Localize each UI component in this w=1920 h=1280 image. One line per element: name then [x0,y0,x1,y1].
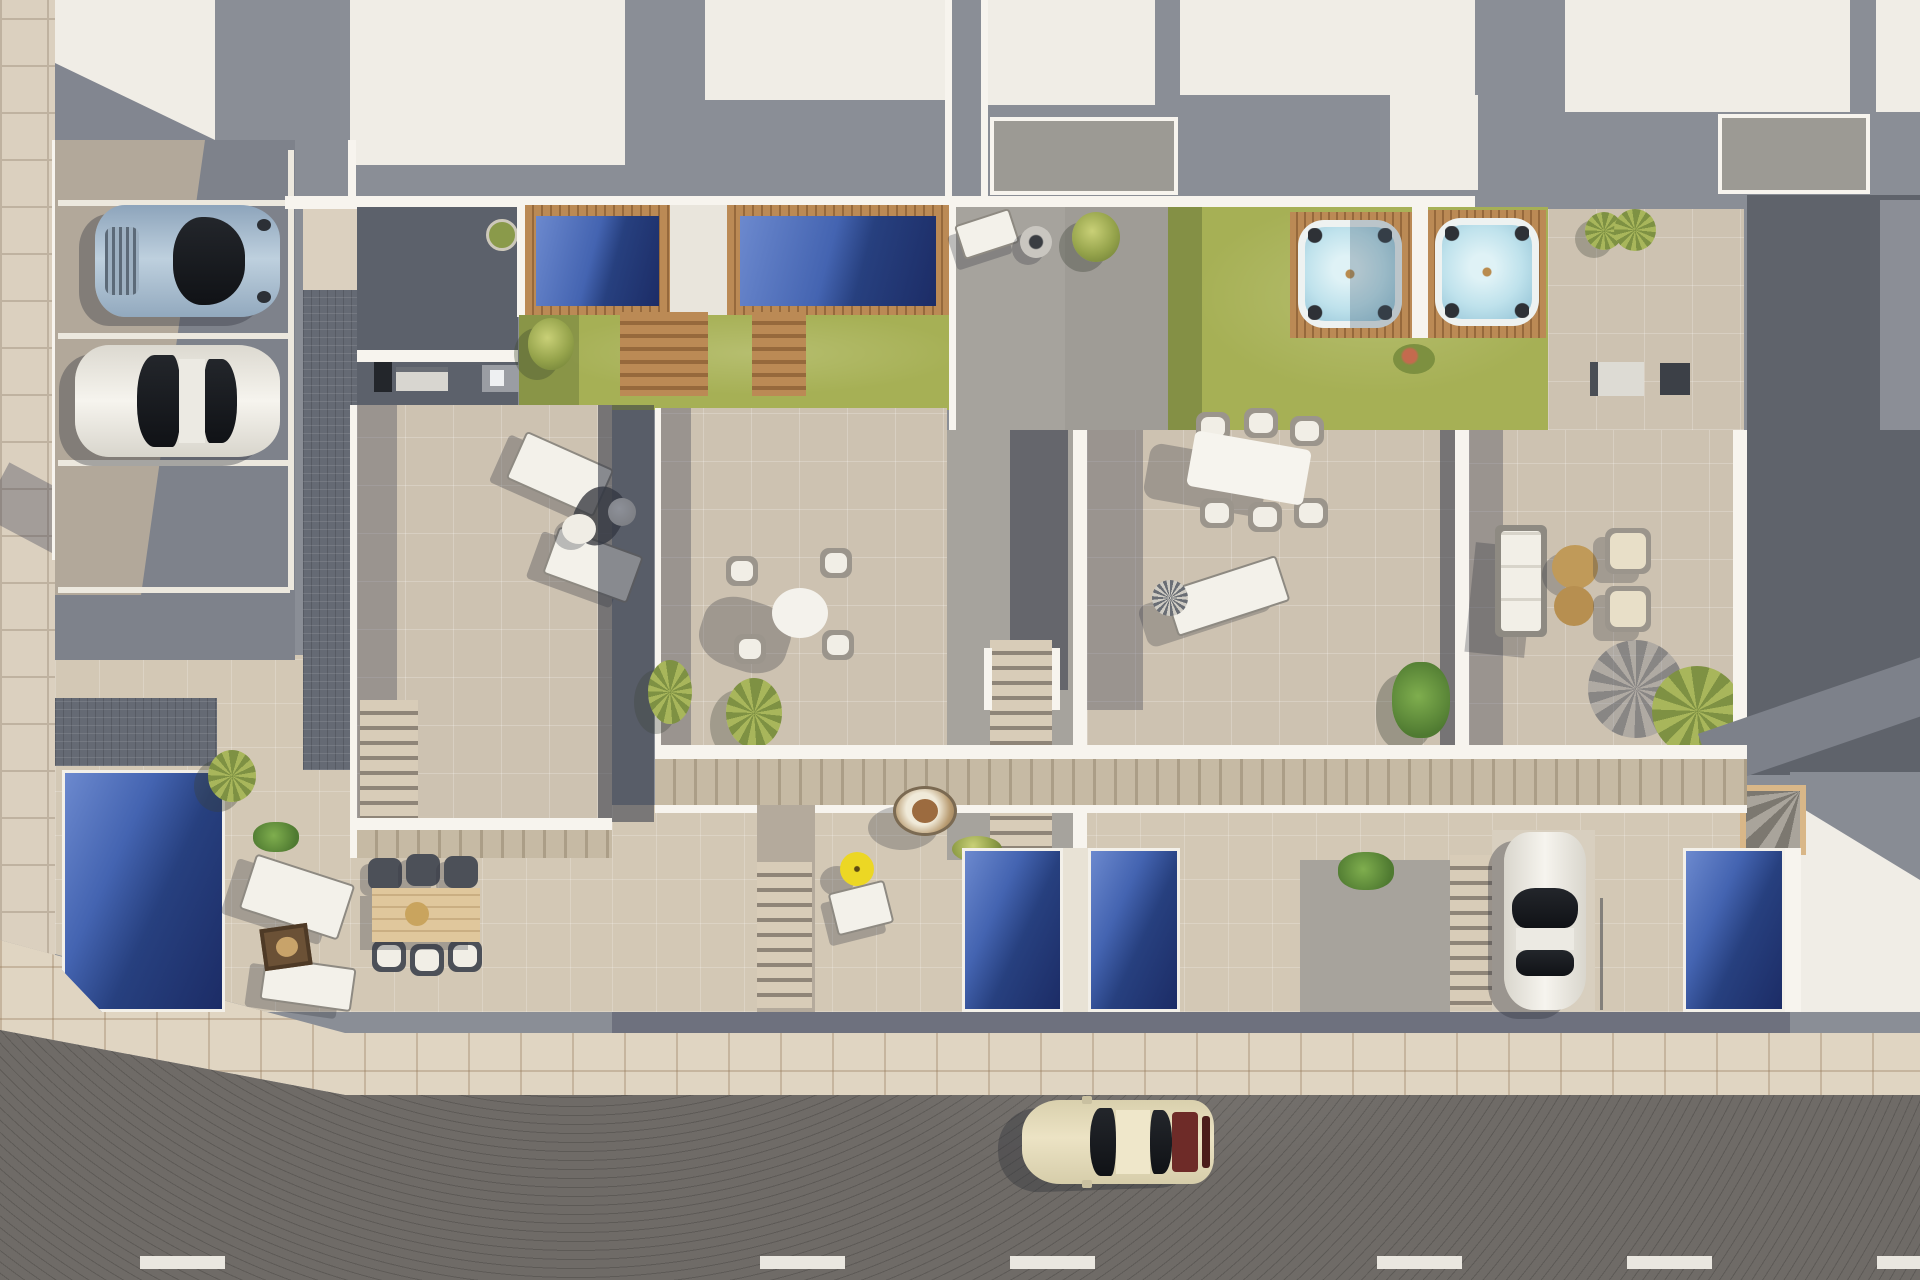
unit1-2-lawn [519,315,949,410]
lawn-shadow [1168,207,1202,430]
coupe-headlight [257,219,271,231]
chair-cushion [731,561,753,581]
unit3-plunge-pool [1088,848,1180,1012]
wicker-chair [820,548,852,578]
stall-line-right [288,150,294,590]
kitchen-module-dark [1660,363,1690,395]
unit3-patio-monstera [1338,852,1394,890]
cream-classic-car [1022,1100,1214,1184]
wicker-chair [734,634,766,664]
monstera-plant [1392,662,1450,738]
stair-newel [984,648,992,710]
pool-divider-wall [1063,848,1088,1012]
party-wall [945,0,952,196]
unit1-upper-parapet [357,350,518,362]
patio-chair [410,944,444,976]
bbq-cabinet [374,362,392,392]
rooftop-unit4a [1390,95,1478,190]
unit1-porch-deck [357,830,612,858]
rooftop-pool2 [740,216,936,306]
neighbor-roof-light-strip [1880,200,1920,430]
unit2-4-porch-deck [655,759,1747,805]
sedan-windshield [137,355,181,447]
silver-blue-coupe [95,205,280,317]
aerial-render-stage [0,0,1920,1280]
sedan-rear-glass [203,359,237,443]
terrace-palm [648,660,692,724]
cobble-strip-vertical [303,290,357,770]
lounger-wheel [1152,580,1188,616]
unit4-entry-stairs [1450,855,1492,1007]
unit2-patio-stairs [757,862,812,1008]
porch-post-shadow [1600,898,1603,1010]
cobble-top-tiles [303,207,357,290]
tub-divider-wall [1412,205,1428,338]
unit1-porch-wall [357,818,612,830]
hatchback-rear-glass [1516,950,1574,976]
sink-module [482,365,522,392]
unit2-4-porch-wall [655,745,1747,759]
chair-cushion [1249,413,1273,433]
unit2-plunge-pool [962,848,1063,1012]
coupe-rear-slats [105,227,139,295]
chair-cushion [1205,503,1229,523]
recessed-roof-terrace-left [990,117,1178,195]
pool2-wood-steps [752,312,806,396]
round-planter [486,219,518,251]
hanging-egg-chair [893,786,957,836]
rooftop-unit2 [705,0,950,100]
round-dining-table [772,588,828,638]
hatchback-windshield [1512,888,1578,928]
patio-chair [368,858,402,890]
unit1-terrace-shadow-top [357,405,612,439]
rooftop-unit1 [350,0,625,165]
unit4-plunge-pool [1683,848,1785,1012]
white-sedan [75,345,280,457]
hot-tub2 [1435,218,1539,326]
garden-bush [528,318,574,370]
patio-palm [208,750,256,802]
classic-taillight-band [1202,1116,1210,1168]
armchair-cushion [1610,533,1646,569]
unit1-2-wall-shadow [598,405,654,822]
chair-cushion [1253,507,1277,527]
tub-headrests [1445,226,1529,318]
chair-cushion [1299,503,1323,523]
side-mirror [1082,1096,1092,1104]
patio-monstera [253,822,299,852]
lane-dash [1877,1256,1920,1269]
patio-chair [448,940,482,972]
lane-dash [760,1256,845,1269]
winder-stair-steps [1746,791,1800,849]
outdoor-sofa [1495,525,1547,637]
roof-gap-shadow [1850,0,1876,112]
hot-tub1 [1298,220,1402,328]
building-shadow-on-sidewalk [612,1012,1790,1033]
side-table [562,514,596,544]
unit4-pool-wall [1785,848,1801,1012]
patio-chair [444,856,478,888]
unit2-roof-terrace [655,408,947,750]
hatchback-roof [1516,928,1574,950]
chair-cushion [739,639,761,659]
left-patio-pool [62,770,225,1012]
pool1-west-wall [517,205,525,317]
rooftop-unit3a [985,0,1155,105]
lane-dash [1010,1256,1095,1269]
classic-rear-glass [1150,1110,1172,1174]
kitchen-module [1590,362,1644,396]
cobble-strip-horizontal [55,698,217,766]
pools-gap-parapet [670,205,727,317]
outdoor-kitchen-counter [396,367,448,391]
unit4-east-wall [1733,430,1747,753]
dining-chair [1290,416,1324,446]
terrace-palm [726,678,782,748]
yellow-parasol [840,852,874,886]
coupe-headlight [257,291,271,303]
chair-cushion [827,635,849,655]
unit2-upper-wall [949,207,956,430]
stall-line [58,460,290,466]
coupe-cabin-glass [173,217,245,305]
tub-shade [1350,220,1402,328]
unit4-terrace-shadow-top [1469,430,1747,464]
table-plate [405,902,429,926]
parking-shadow-bottom [55,595,295,660]
lane-dash [1377,1256,1462,1269]
unit4-west-wall [1455,430,1469,752]
patio-chair [372,940,406,972]
egg-chair-cushion [912,799,938,823]
classic-roof [1116,1110,1150,1174]
armchair [1605,528,1651,574]
sedan-roof [179,359,205,443]
stair-newel [1052,648,1060,710]
unit2-terrace-shadow-top [661,408,947,438]
wicker-chair [726,556,758,586]
patio-chair [406,854,440,886]
fire-bowl [1020,226,1052,258]
dining-chair [1200,498,1234,528]
chair-cushion [415,949,439,971]
west-wall-top [348,140,356,196]
side-mirror [1082,1180,1092,1188]
rooftop-unit3b [1180,0,1475,95]
coffee-table [1552,545,1598,589]
armchair-cushion [1610,591,1646,627]
sofa-cushions [1501,531,1541,631]
unit3-terrace-shadow-left [1087,430,1143,710]
fire-table [259,923,312,971]
chair-cushion [453,945,477,967]
stall-line [58,587,290,593]
party-wall [981,0,988,196]
flower-bush [1393,344,1435,374]
coffee-table [1554,586,1594,626]
chair-cushion [377,945,401,967]
armchair [1605,586,1651,632]
unit2-4-porch-trim [655,805,1747,813]
unit1-west-wall [350,405,357,858]
lane-dash [140,1256,225,1269]
wicker-chair [822,630,854,660]
rooftop-pool1 [536,216,659,306]
terrace-tree [1072,212,1120,262]
recessed-roof-terrace-right [1718,114,1870,194]
white-hatchback [1504,832,1586,1010]
dining-chair [1248,502,1282,532]
chair-cushion [1295,421,1319,441]
classic-windshield [1090,1108,1116,1176]
stall-line [58,333,290,339]
fire-table-bowl [275,935,300,958]
pool1-wood-steps [620,312,708,396]
classic-engine-lid [1172,1112,1198,1172]
sink-basin [490,370,504,386]
dining-chair [1244,408,1278,438]
unit1-terrace-stairs [360,700,418,820]
small-palm [1614,209,1656,251]
lane-dash [1627,1256,1712,1269]
chair-cushion [825,553,847,573]
